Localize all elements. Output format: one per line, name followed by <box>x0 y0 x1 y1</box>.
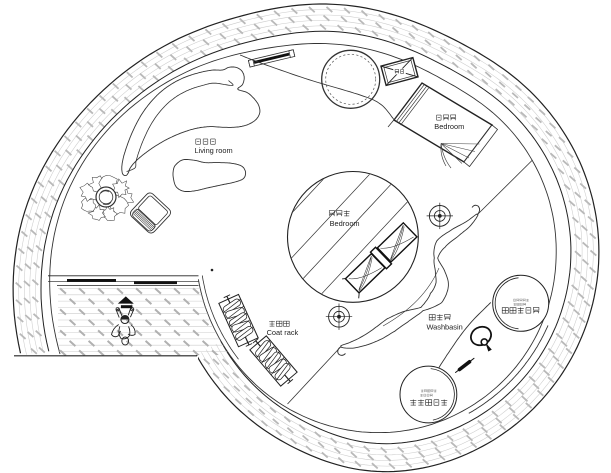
svg-text:Bedroom: Bedroom <box>330 219 360 228</box>
svg-text:Bedroom: Bedroom <box>434 122 464 131</box>
svg-text:Living room: Living room <box>194 146 232 155</box>
svg-text:Coat rack: Coat rack <box>267 328 299 337</box>
svg-text:Washbasin: Washbasin <box>426 323 462 332</box>
